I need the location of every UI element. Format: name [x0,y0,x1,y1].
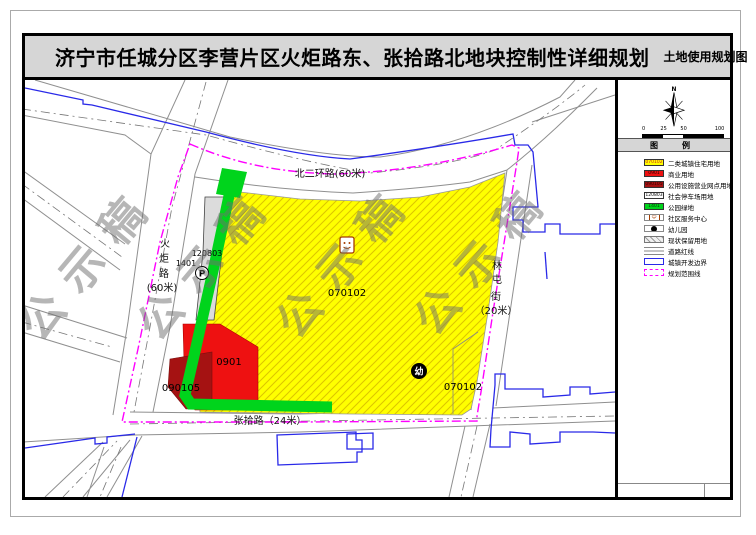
legend-item-dev-boundary: 城镇开发边界 [644,257,707,266]
scale-label-50: 50 [680,126,686,132]
legend-item-commercial: 0901 商业用地 [644,169,694,178]
sheet-content: 北二环路(60米) 火 炬 路 (60米) 张拾路（24米） 林 屯 街 （20… [25,80,730,497]
plan-sheet-frame: 济宁市任城分区李营片区火炬路东、张拾路北地块控制性详细规划 土地使用规划图 [22,33,733,500]
legend-swatch-park-green: 1401 [644,203,664,210]
legend-item-park-green: 1401 公园绿地 [644,202,694,211]
legend-swatch-existing-land [644,236,664,243]
legend-item-residential: 070102 二类城镇住宅用地 [644,158,720,167]
road-label-north-ring: 北二环路(60米) [295,167,366,180]
map-canvas: 北二环路(60米) 火 炬 路 (60米) 张拾路（24米） 林 屯 街 （20… [25,80,618,497]
title-bar: 济宁市任城分区李营片区火炬路东、张拾路北地块控制性详细规划 土地使用规划图 [25,36,730,80]
kindergarten-icon: 幼 [411,363,427,379]
legend-item-community-center: ☺ 社区服务中心 [644,213,707,222]
label-commercial: 0901 [216,357,241,368]
svg-text:火: 火 [160,238,170,250]
label-residential-se: 070102 [444,382,482,393]
legend-swatch-plan-boundary [644,269,664,276]
legend-item-utility: 090105 公用设施营业网点用地 [644,180,733,189]
road-label-zhangshi: 张拾路（24米） [234,414,307,427]
legend-swatch-road-redline [644,247,664,255]
panel-titleblock-line [618,483,730,484]
compass-rose: N [618,84,730,132]
svg-text:炬: 炬 [159,252,169,265]
legend-panel: N 0 25 50 100 图 例 070102 [618,80,730,497]
scale-label-0: 0 [642,126,645,132]
legend-swatch-dev-boundary [644,258,664,265]
legend-swatch-residential: 070102 [644,159,664,166]
svg-text:（20米）: （20米） [475,304,518,317]
page: { "page": { "title": "济宁市任城分区李营片区火炬路东、张拾… [0,0,756,535]
map-type-label: 土地使用规划图 [664,48,748,65]
kindergarten-legend-icon [644,225,664,232]
map-svg: 北二环路(60米) 火 炬 路 (60米) 张拾路（24米） 林 屯 街 （20… [25,80,615,497]
legend-header: 图 例 [618,138,730,152]
legend-swatch-parking: 120803 [644,192,664,199]
legend-item-road-redline: 道路红线 [644,246,694,255]
svg-text:街: 街 [491,290,501,303]
scale-label-100: 100 [715,126,725,132]
legend-item-parking: 120803 社会停车场用地 [644,191,714,200]
scale-label-25: 25 [660,126,666,132]
svg-text:幼: 幼 [414,366,423,378]
legend-item-existing-land: 现状保留用地 [644,235,707,244]
legend-swatch-utility: 090105 [644,181,664,188]
panel-titleblock-divider [704,483,705,497]
legend-swatch-commercial: 0901 [644,170,664,177]
label-utility-outlet: 090105 [162,383,200,394]
compass-svg: N [654,84,694,128]
legend-item-plan-boundary: 规划范围线 [644,268,701,277]
page-title: 济宁市任城分区李营片区火炬路东、张拾路北地块控制性详细规划 [55,42,650,71]
compass-north-label: N [672,87,677,93]
community-center-icon: ☺ [644,214,664,221]
legend-item-kindergarten: 幼儿园 [644,224,688,233]
